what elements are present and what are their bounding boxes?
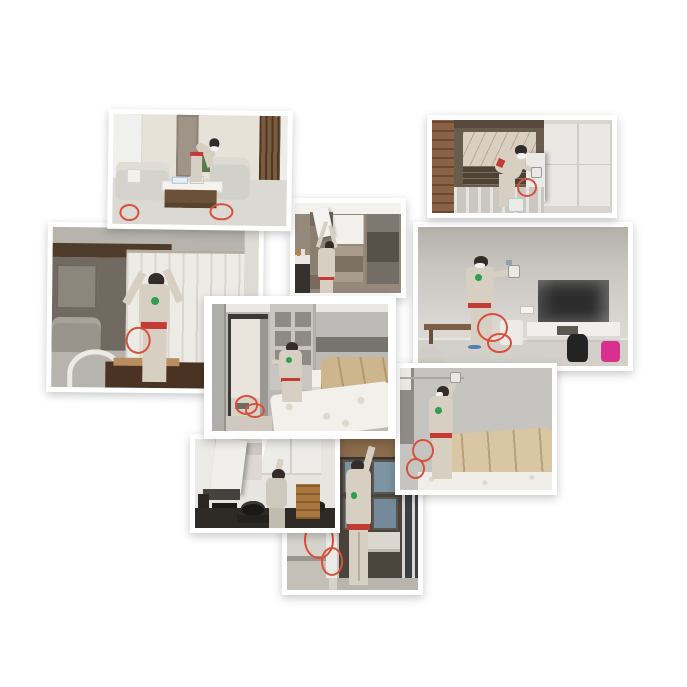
- backpack: [567, 334, 588, 362]
- red-hose: [119, 204, 139, 221]
- photo-entry-cabinet: [427, 115, 617, 218]
- uniform-logo: [351, 492, 358, 499]
- uniform-logo: [151, 297, 159, 305]
- glass-display-doors: [365, 214, 399, 284]
- bottle: [297, 250, 300, 256]
- worker-torso: [346, 469, 371, 527]
- curtain-corner: [400, 368, 411, 390]
- cabinet-split: [290, 439, 291, 475]
- kitchen-scene: [195, 439, 335, 528]
- window-screen: [56, 264, 98, 309]
- worker-torso: [266, 478, 287, 508]
- open-cabinet-door: [210, 439, 247, 494]
- pink-bag: [601, 341, 620, 362]
- uniform-logo: [286, 357, 292, 363]
- worker-belt: [468, 303, 491, 307]
- red-hose: [210, 203, 233, 221]
- worker-torso: [318, 248, 335, 279]
- photo-display-shelf: [290, 198, 406, 298]
- spray-gun-cup: [508, 265, 519, 278]
- photo-living-room: [107, 109, 293, 232]
- worker-legs: [191, 153, 202, 182]
- worker-legs: [269, 508, 284, 528]
- cubby: [275, 312, 291, 327]
- wall-socket: [520, 306, 535, 314]
- photo-bed-headboard: [395, 363, 557, 495]
- leg-seam: [358, 532, 360, 581]
- living-room-scene: [112, 114, 288, 226]
- spray-gun-cup: [531, 167, 542, 177]
- worker-legs: [432, 438, 452, 479]
- gas-stove: [237, 515, 273, 523]
- glossy-upper-cabinets: [262, 439, 321, 475]
- floor: [418, 338, 628, 366]
- cubby: [295, 312, 311, 327]
- uniform-logo: [435, 407, 442, 414]
- display-shelf-scene: [295, 203, 401, 293]
- knife-block: [198, 494, 209, 507]
- red-hose: [517, 178, 537, 197]
- wood-door-frame: [432, 120, 454, 213]
- worker-mask: [211, 146, 219, 152]
- wall-rail: [212, 503, 237, 507]
- worker-belt: [191, 152, 203, 156]
- blue-panel-cubby: [372, 497, 398, 531]
- photo-kitchen: [190, 434, 340, 533]
- bedroom-scene: [212, 304, 388, 431]
- collage-canvas: [0, 0, 687, 687]
- wood-floor: [226, 416, 272, 431]
- throw-pillow: [127, 169, 141, 183]
- coffee-table-base: [165, 189, 217, 208]
- photo-bedroom: [204, 296, 396, 439]
- dark-counter: [295, 264, 310, 293]
- white-cabinet-doors: [333, 215, 364, 245]
- bucket: [508, 198, 524, 212]
- photo-tv-wall: [413, 222, 633, 371]
- open-shelves: [333, 246, 363, 282]
- wardrobe-edge: [212, 304, 226, 431]
- spray-gun-cup: [450, 372, 460, 384]
- bench-leg: [429, 330, 433, 344]
- worker-legs-crouched: [282, 381, 301, 401]
- red-hose: [321, 547, 343, 575]
- wood-cabinet: [296, 484, 320, 520]
- red-hose: [126, 327, 151, 354]
- worker-torso: [429, 396, 453, 435]
- tv-wall-scene: [418, 227, 628, 366]
- kitchen-counter: [295, 255, 310, 264]
- worker-legs: [320, 280, 333, 293]
- tv-wrapped-in-plastic: [538, 280, 609, 322]
- spray-gun: [506, 260, 512, 265]
- entry-cabinet-scene: [432, 120, 612, 213]
- door-leaf: [260, 319, 269, 416]
- bottle: [301, 249, 304, 256]
- worker-mask: [517, 153, 526, 159]
- sofa: [52, 317, 102, 353]
- wall-niche-band: [316, 337, 388, 352]
- worker-mask: [475, 263, 486, 268]
- bed-headboard-scene: [400, 368, 552, 490]
- box-on-table: [172, 176, 188, 184]
- cabinet-split-line: [544, 164, 612, 165]
